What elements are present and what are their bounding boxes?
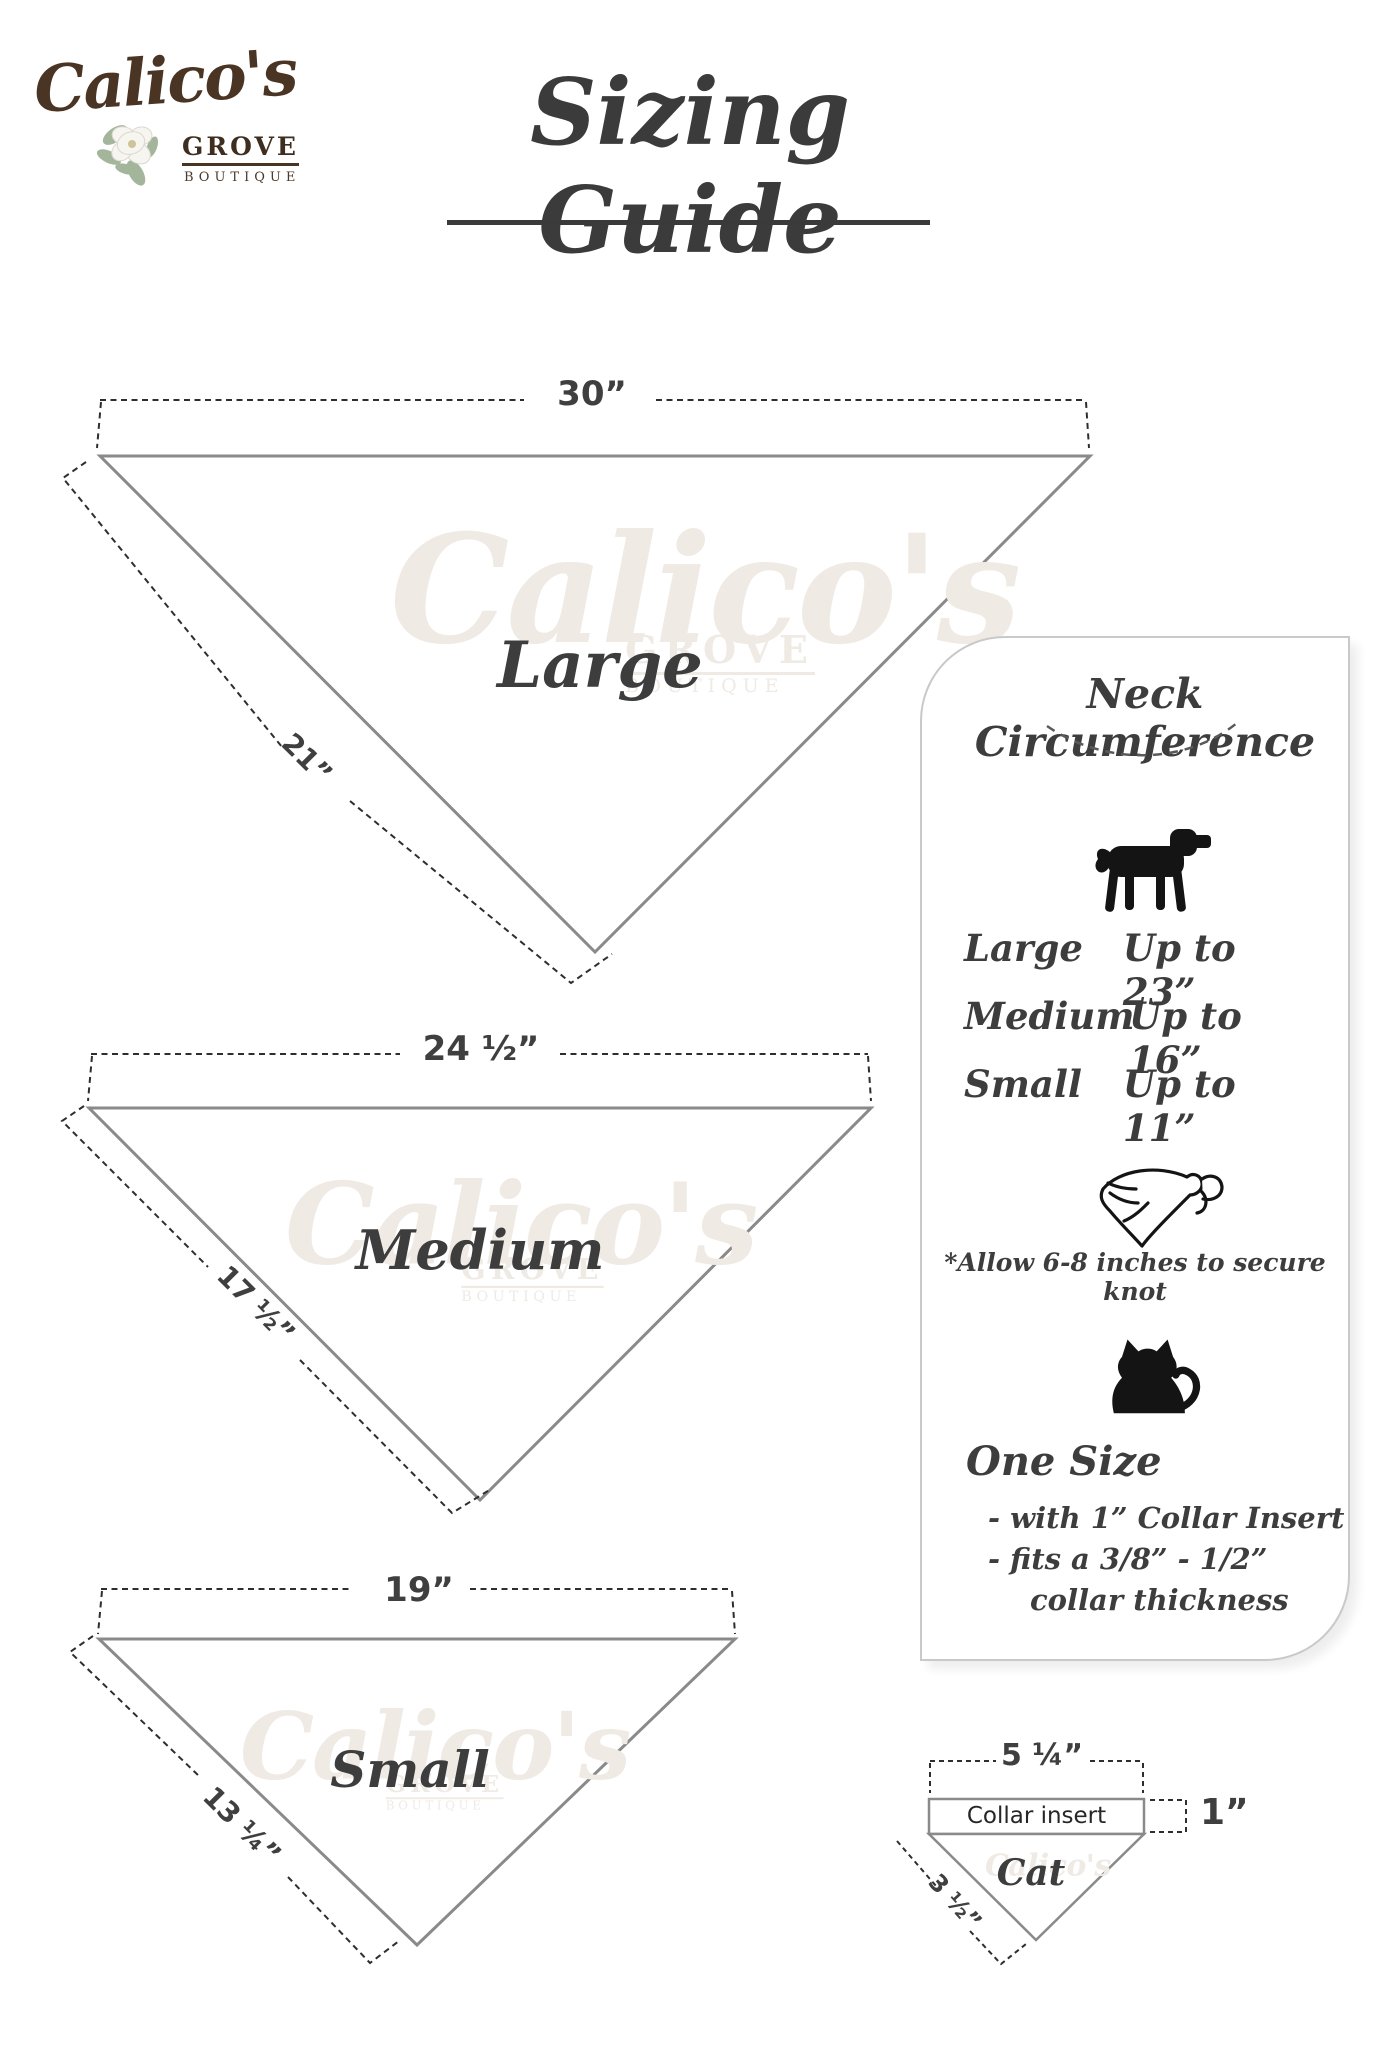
dog-size-label: Small: [964, 1062, 1123, 1106]
large-top-width-label: 30”: [527, 374, 657, 414]
dog-size-label: Medium: [964, 994, 1129, 1038]
sizing-guide-page: Calico's GROVE BOUTIQUE Calico's GROVE B…: [0, 0, 1376, 2060]
tied-bandana-icon: [1094, 1158, 1226, 1254]
dog-size-row-large: Large Up to 23”: [964, 926, 1314, 994]
cat-icon: [1102, 1330, 1204, 1420]
page-title: Sizing Guide: [380, 58, 1000, 274]
large-size-label: Large: [450, 628, 750, 703]
small-size-label: Small: [260, 1740, 560, 1799]
one-size-heading: One Size: [966, 1438, 1162, 1485]
knot-allowance-note: *Allow 6-8 inches to secure knot: [922, 1248, 1348, 1306]
dog-size-row-small: Small Up to 11”: [964, 1062, 1314, 1130]
cat-top-width-label: 5 ¼”: [982, 1738, 1102, 1773]
dashed-smile-underline: [1042, 718, 1242, 773]
insert-height-bracket: [1150, 1800, 1186, 1832]
dog-size-list: Large Up to 23” Medium Up to 16” Small U…: [964, 926, 1314, 1130]
neck-circumference-panel: Neck Circumference Large Up to 23”: [920, 636, 1350, 1661]
one-size-line-3: collar thickness: [1030, 1580, 1344, 1621]
one-size-line-2: - fits a 3/8” - 1/2”: [988, 1539, 1344, 1580]
logo-boutique: BOUTIQUE: [184, 170, 300, 185]
title-underline: [447, 220, 930, 225]
medium-top-width-label: 24 ½”: [401, 1029, 561, 1069]
logo-grove: GROVE: [182, 132, 299, 166]
one-size-line-1: - with 1” Collar Insert: [988, 1498, 1344, 1539]
cat-size-label: Cat: [981, 1852, 1081, 1894]
insert-height-label: 1”: [1200, 1792, 1249, 1833]
medium-size-label: Medium: [330, 1218, 630, 1282]
dog-size-value: Up to 11”: [1123, 1062, 1314, 1150]
small-top-width-label: 19”: [359, 1570, 479, 1610]
dog-size-label: Large: [964, 926, 1123, 970]
one-size-details: - with 1” Collar Insert - fits a 3/8” - …: [988, 1498, 1344, 1621]
medium-bandana-shape: [62, 1054, 871, 1513]
dog-size-row-medium: Medium Up to 16”: [964, 994, 1314, 1062]
collar-insert-label: Collar insert: [929, 1799, 1144, 1834]
dog-icon: [1094, 824, 1216, 918]
